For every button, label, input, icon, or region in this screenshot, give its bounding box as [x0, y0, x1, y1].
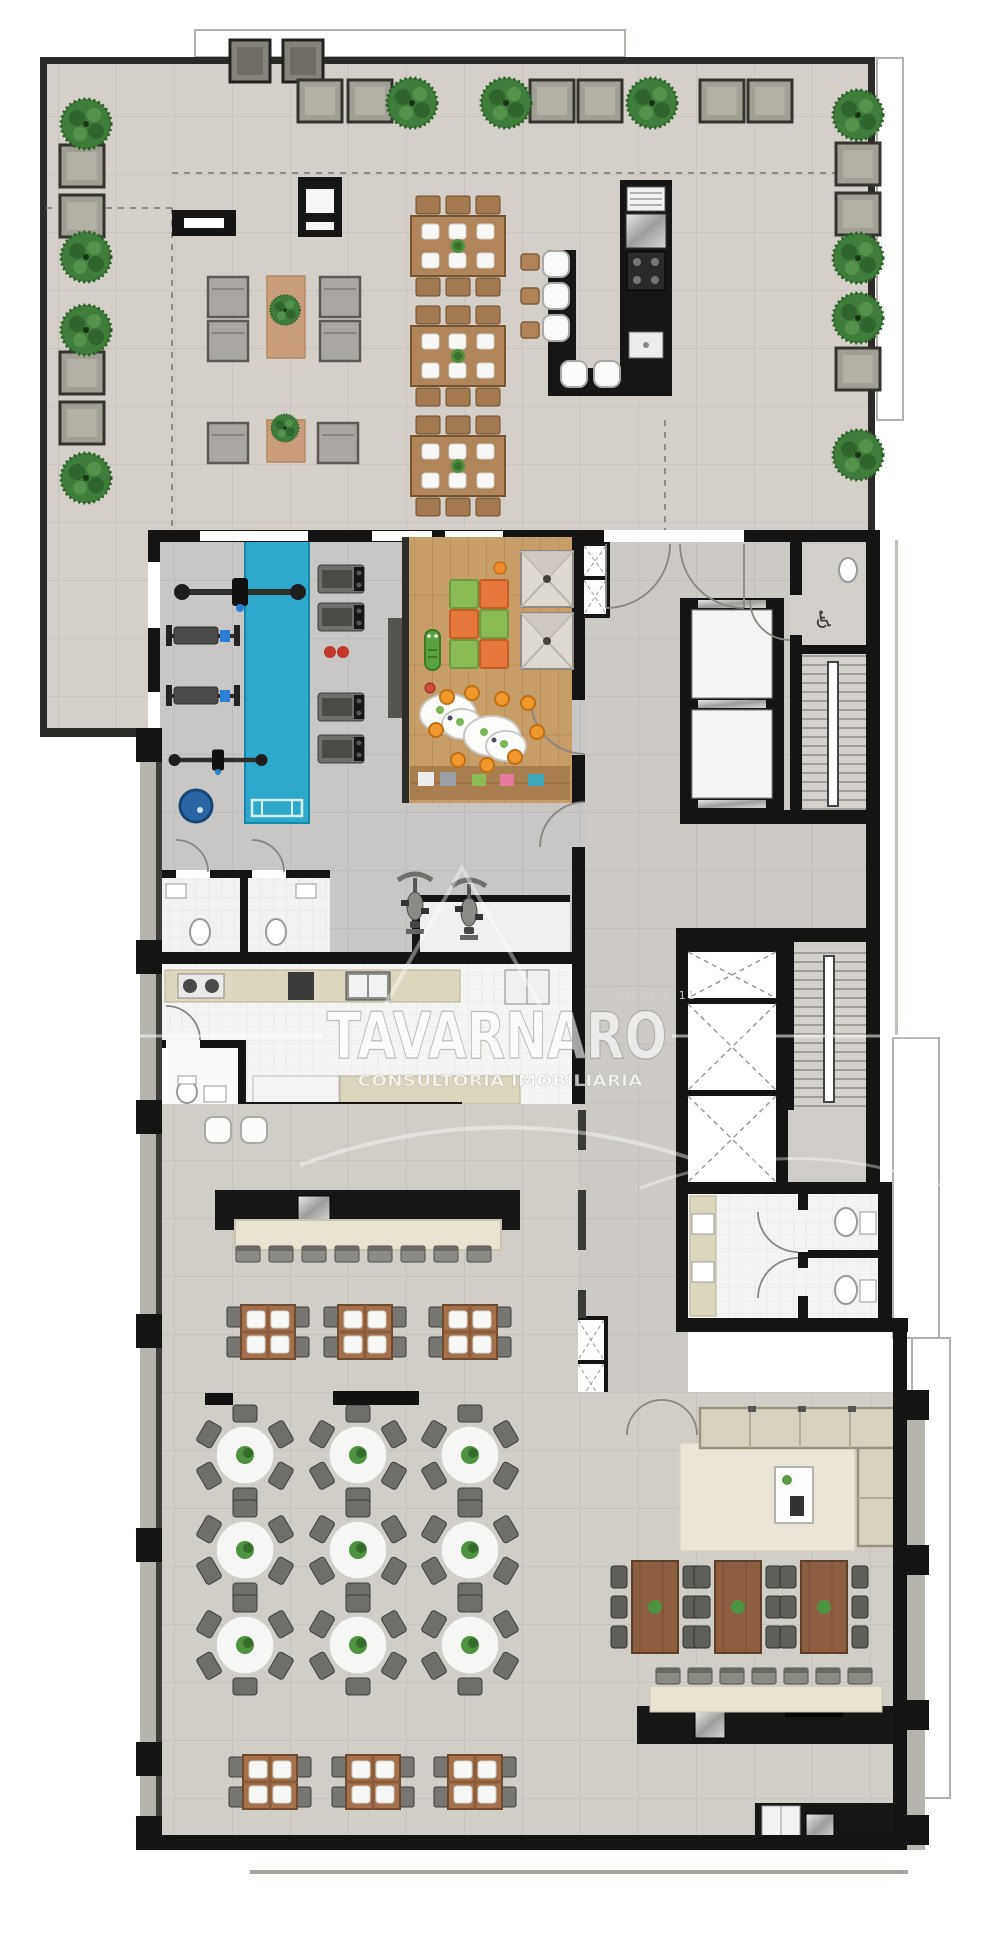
- matO: [480, 580, 508, 608]
- tree: [833, 233, 883, 283]
- chairUp: [848, 1668, 872, 1684]
- chairUp: [656, 1668, 680, 1684]
- matG: [480, 610, 508, 638]
- misc-circle: [183, 979, 197, 993]
- matO: [450, 610, 478, 638]
- tree: [833, 293, 883, 343]
- restrooms: [676, 1182, 892, 1332]
- lounger: [208, 423, 248, 463]
- lounger: [208, 321, 248, 361]
- chairUp: [269, 1246, 293, 1262]
- chairUp: [752, 1668, 776, 1684]
- tree: [481, 78, 531, 128]
- stoolO: [480, 758, 494, 772]
- watermark-title: TAVARNARO: [327, 1000, 667, 1074]
- chairT: [521, 288, 539, 304]
- teepee: [521, 551, 573, 607]
- stoolW: [561, 361, 587, 387]
- spa-whirlpool: [180, 790, 212, 822]
- planter: [836, 143, 880, 185]
- chairUp: [816, 1668, 840, 1684]
- lounge: [680, 1406, 898, 1551]
- lounger: [208, 277, 248, 317]
- planter: [60, 145, 104, 187]
- stoolO: [508, 750, 522, 764]
- watermark-subtitle: CONSULTORIA IMOBILIÁRIA: [358, 1071, 644, 1090]
- chairT: [521, 322, 539, 338]
- lounger: [318, 423, 358, 463]
- chairUp: [236, 1246, 260, 1262]
- planter: [530, 80, 574, 122]
- circulation-core: ♿: [574, 530, 905, 1408]
- lounger: [320, 277, 360, 317]
- chairUp: [335, 1246, 359, 1262]
- planter: [60, 352, 104, 394]
- tree: [387, 78, 437, 128]
- chairUp: [401, 1246, 425, 1262]
- tree: [61, 453, 111, 503]
- stoolW: [543, 251, 569, 277]
- stoolO: [465, 686, 479, 700]
- chairUp: [467, 1246, 491, 1262]
- toy-orange: [494, 562, 506, 574]
- planter: [298, 80, 342, 122]
- planter: [700, 80, 744, 122]
- toy-red: [425, 683, 435, 693]
- misc-circle: [324, 646, 336, 658]
- lounger: [320, 321, 360, 361]
- tree: [627, 78, 677, 128]
- stoolO: [440, 690, 454, 704]
- tree: [61, 305, 111, 355]
- planter: [836, 193, 880, 235]
- matG: [450, 580, 478, 608]
- tree: [270, 295, 300, 325]
- vtable: [780, 1561, 868, 1653]
- planter: [836, 348, 880, 390]
- stoolO: [521, 696, 535, 710]
- chairUp: [368, 1246, 392, 1262]
- treadmill: [318, 603, 364, 631]
- kitchen-wc: [160, 1040, 246, 1110]
- stoolW: [205, 1117, 231, 1143]
- tree: [61, 99, 111, 149]
- floorplan-svg: ♿: [0, 0, 1000, 1944]
- chairUp: [434, 1246, 458, 1262]
- tree: [833, 430, 883, 480]
- stoolW: [543, 315, 569, 341]
- planterDark: [230, 40, 270, 82]
- planterDark: [283, 40, 323, 82]
- table6: [411, 306, 505, 406]
- teepee: [521, 613, 573, 669]
- stoolW: [594, 361, 620, 387]
- misc-rect: [306, 189, 334, 213]
- table6: [411, 196, 505, 296]
- misc-circle: [205, 979, 219, 993]
- tree: [271, 414, 299, 442]
- floorplan-screenshot: ♿: [0, 0, 1000, 1944]
- misc-rect: [440, 772, 456, 786]
- planter: [748, 80, 792, 122]
- planter: [578, 80, 622, 122]
- misc-circle: [337, 646, 349, 658]
- pool: [245, 537, 309, 823]
- stoolW: [543, 283, 569, 309]
- stoolO: [451, 753, 465, 767]
- treadmill: [318, 565, 364, 593]
- treadmill: [318, 693, 364, 721]
- kitchen-counter-south-white: [253, 1076, 339, 1104]
- vtable: [611, 1561, 699, 1653]
- service-table: [650, 1686, 882, 1712]
- misc-rect: [306, 222, 334, 230]
- misc-rect: [184, 218, 224, 228]
- elevator-shaft-upper: [680, 598, 784, 812]
- vtable: [694, 1561, 782, 1653]
- matG: [450, 640, 478, 668]
- left-facade: [136, 728, 162, 1850]
- chairUp: [720, 1668, 744, 1684]
- appliance: [288, 972, 314, 1000]
- misc-rect: [205, 1393, 233, 1405]
- misc-rect: [500, 774, 514, 786]
- stoolO: [429, 723, 443, 737]
- chairUp: [784, 1668, 808, 1684]
- misc-rect: [472, 774, 486, 786]
- wheelchair-icon: ♿: [813, 606, 835, 634]
- matO: [480, 640, 508, 668]
- tree: [61, 232, 111, 282]
- croc: [425, 630, 440, 670]
- lounge-rug: [680, 1443, 855, 1551]
- stoolW: [241, 1117, 267, 1143]
- planter: [60, 402, 104, 444]
- stoolO: [530, 725, 544, 739]
- table6: [411, 416, 505, 516]
- gym-toilets: [160, 870, 330, 954]
- planter: [348, 80, 392, 122]
- treadmill: [318, 735, 364, 763]
- misc-rect: [418, 772, 434, 786]
- misc-rect: [528, 774, 544, 786]
- planter: [60, 195, 104, 237]
- chairUp: [688, 1668, 712, 1684]
- chairUp: [302, 1246, 326, 1262]
- misc-rect: [333, 1391, 419, 1405]
- tree: [833, 90, 883, 140]
- chairT: [521, 254, 539, 270]
- stoolO: [495, 692, 509, 706]
